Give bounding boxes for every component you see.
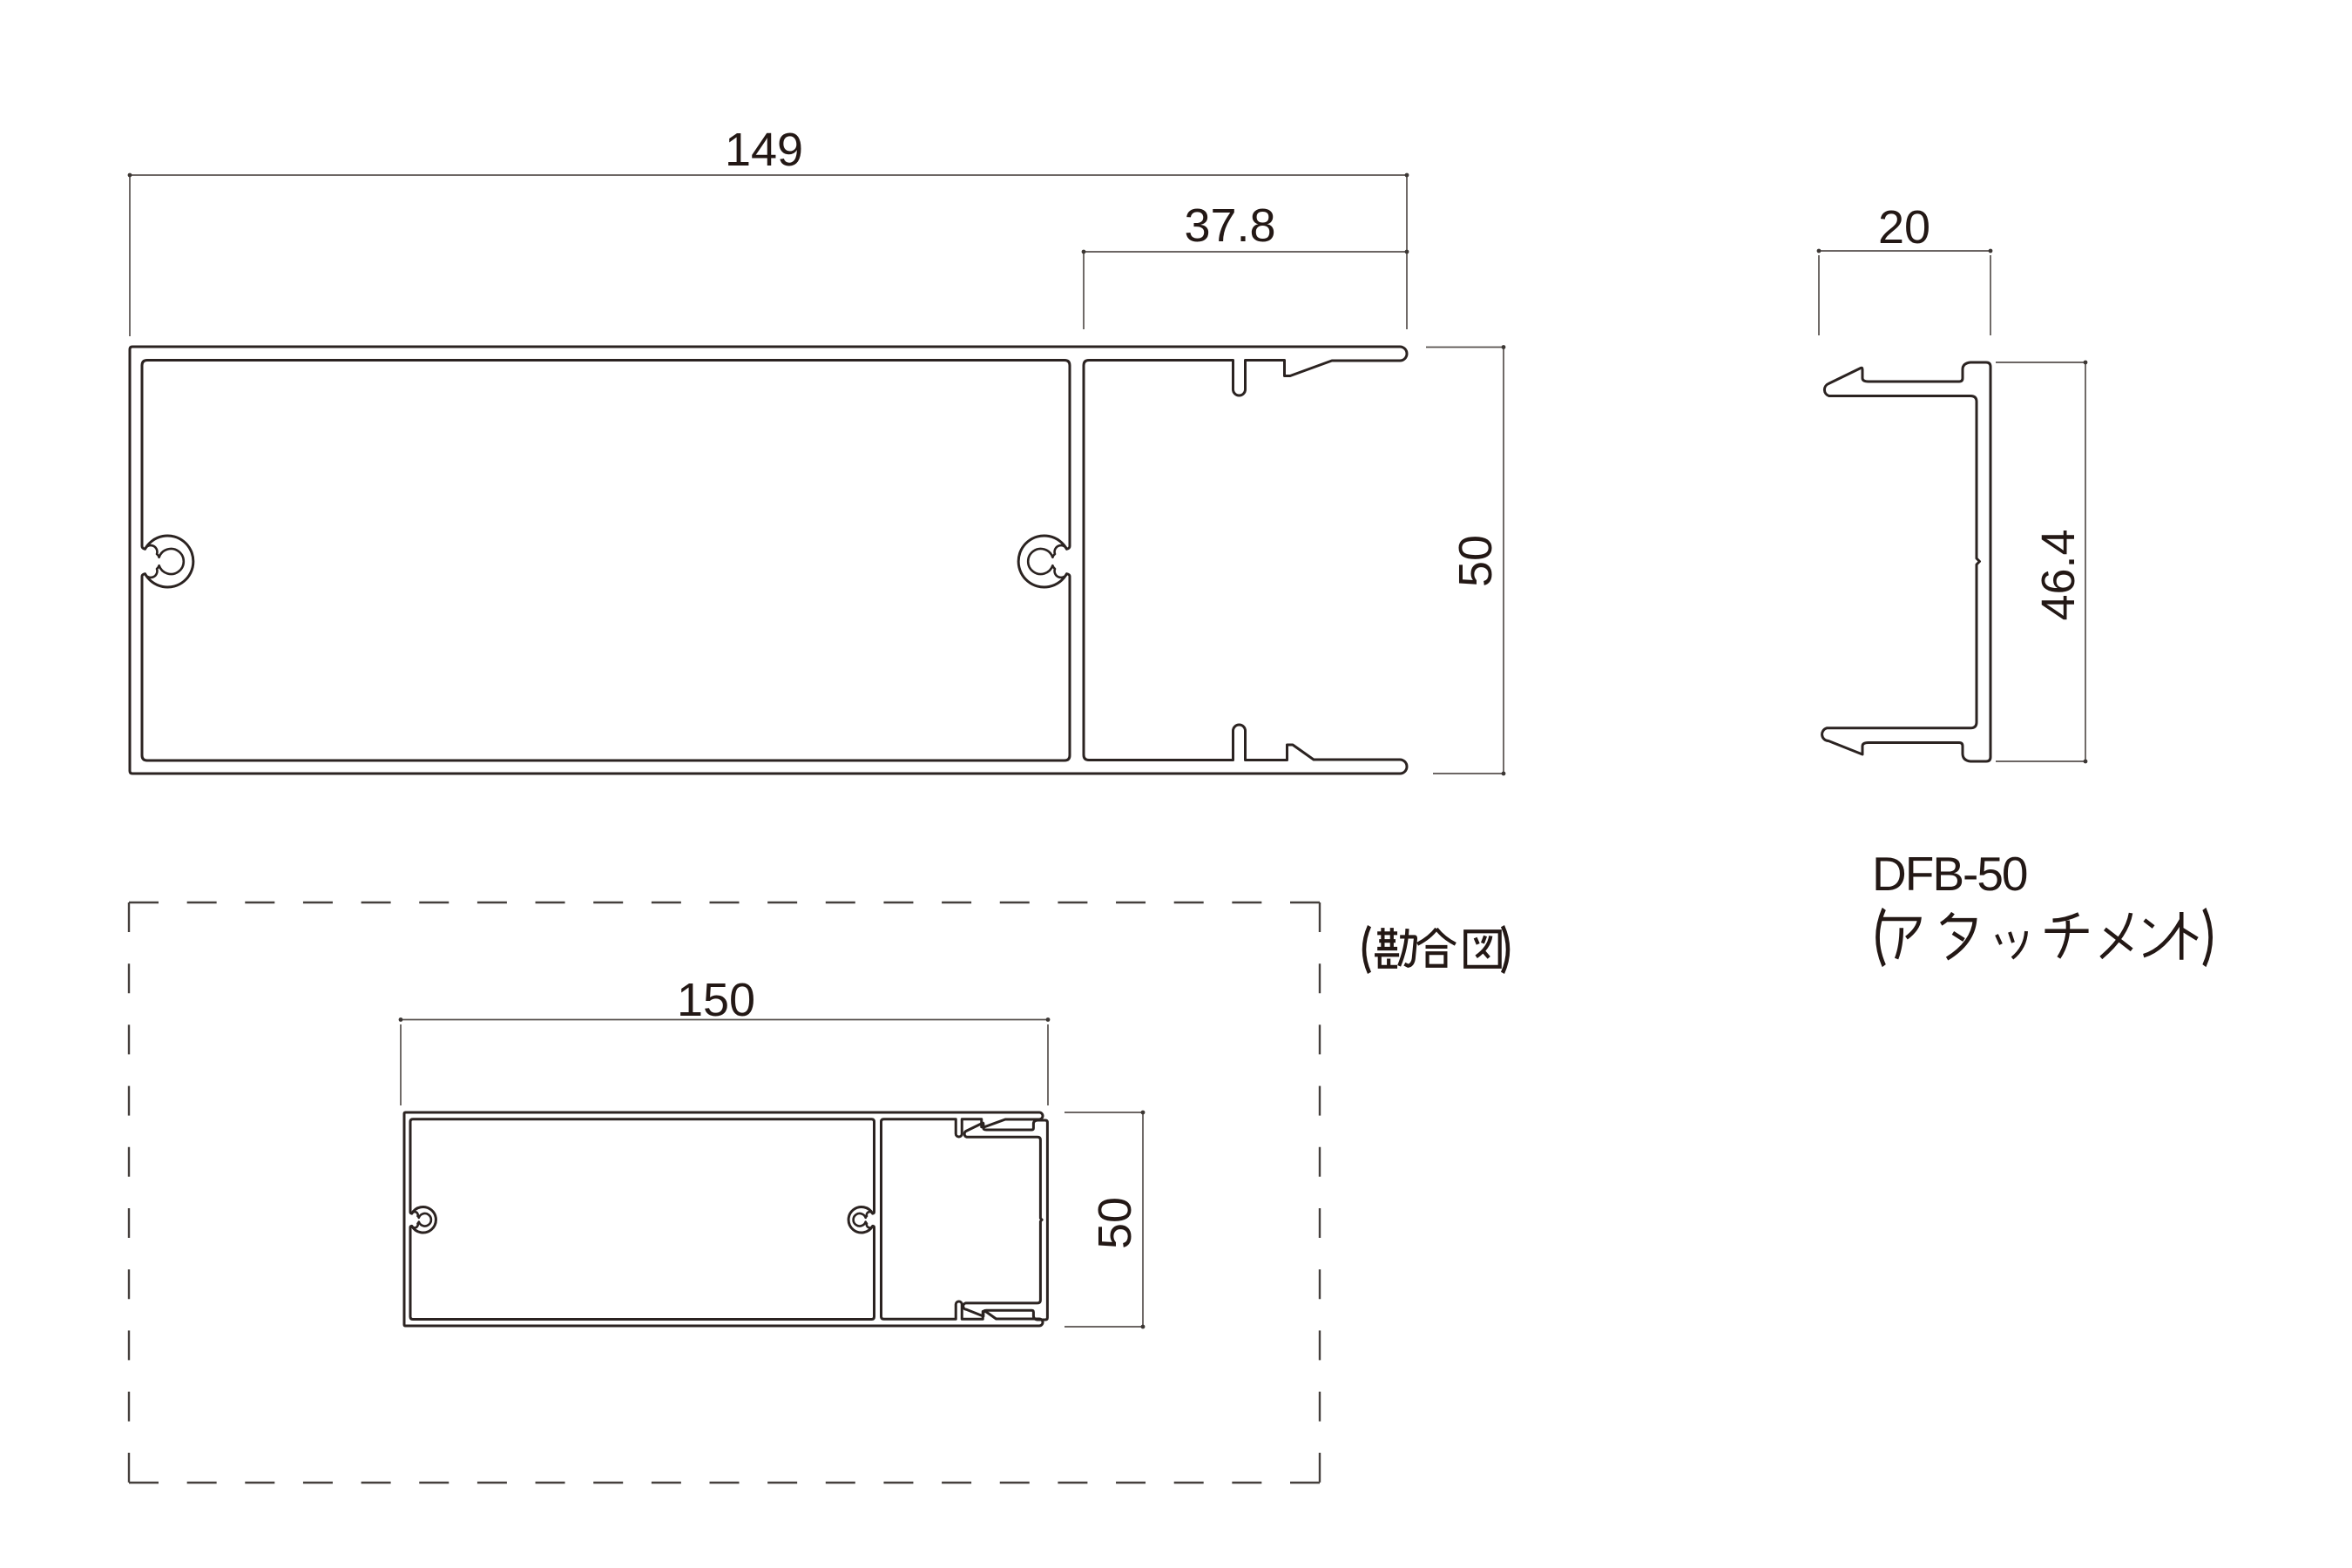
svg-text:149: 149: [725, 124, 803, 176]
svg-text:150: 150: [677, 974, 755, 1026]
svg-text:37.8: 37.8: [1184, 199, 1275, 252]
svg-text:50: 50: [1450, 535, 1502, 587]
svg-text:DFB-50: DFB-50: [1872, 847, 2027, 901]
svg-text:46.4: 46.4: [2032, 529, 2085, 620]
svg-text:20: 20: [1878, 201, 1930, 253]
svg-text:50: 50: [1089, 1197, 1141, 1249]
